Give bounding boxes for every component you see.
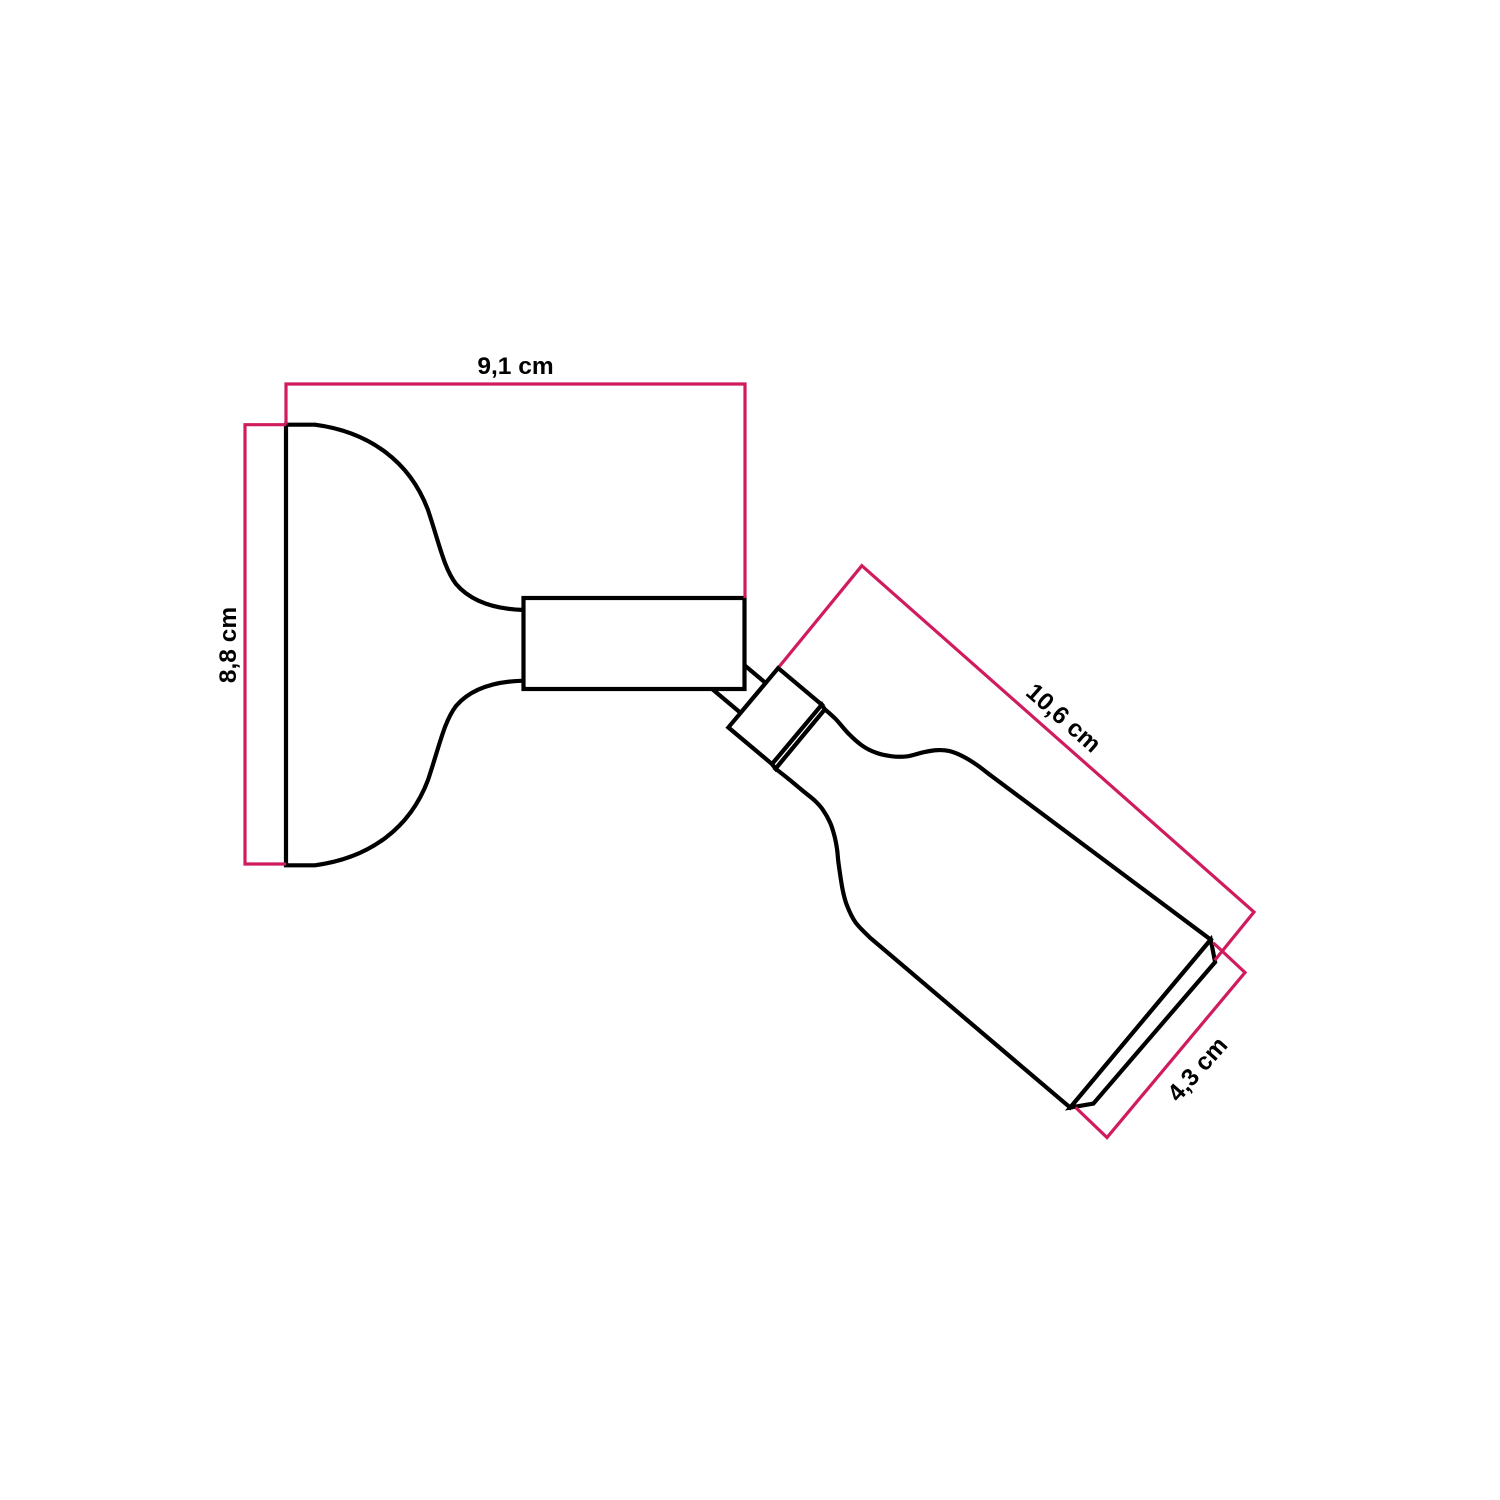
svg-text:9,1 cm: 9,1 cm [477,353,553,380]
svg-text:8,8 cm: 8,8 cm [215,607,242,683]
